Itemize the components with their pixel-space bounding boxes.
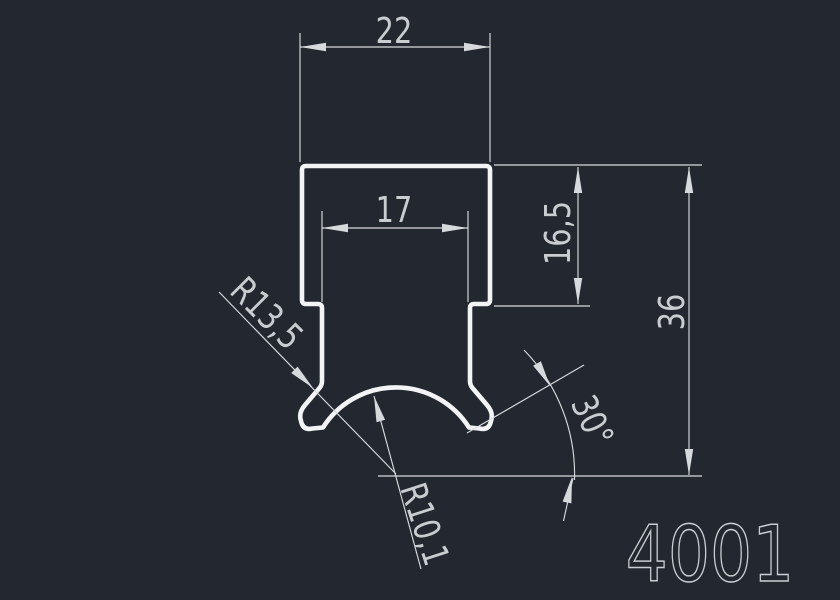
- dim-groove-radius-label: R10,1: [392, 478, 458, 571]
- dim-shoulder-height-arrow-top: [574, 167, 582, 193]
- dim-shoulder-height-arrow-bottom: [574, 278, 582, 304]
- dim-total-height: 36: [651, 167, 693, 475]
- dim-flank-angle: 30°: [467, 350, 622, 521]
- dim-shoulder-height-label: 16,5: [537, 201, 579, 265]
- dim-total-height-label: 36: [651, 294, 693, 331]
- dim-groove-radius-arrow: [374, 396, 385, 422]
- dim-slot-width-label: 17: [376, 189, 413, 231]
- dim-top-width-label: 22: [376, 10, 413, 52]
- dim-slot-width-arrow-right: [442, 224, 468, 232]
- dim-total-height-arrow-bottom: [685, 449, 693, 475]
- dim-top-width-arrow-left: [300, 43, 326, 51]
- dim-shoulder-height: 16,5: [494, 165, 702, 306]
- dim-flank-angle-label: 30°: [562, 389, 622, 453]
- dim-flank-angle-arrow-lower: [563, 477, 572, 503]
- dim-notch-radius: R13,5: [219, 269, 396, 474]
- cad-drawing-canvas[interactable]: 22 17 16,5 36: [0, 0, 840, 600]
- dim-slot-width-arrow-left: [322, 224, 348, 232]
- profile-drawing: 22 17 16,5 36: [0, 0, 840, 600]
- dim-flank-angle-arrow-upper: [533, 361, 550, 386]
- dim-slot-width: 17: [322, 189, 468, 302]
- dim-top-width: 22: [300, 10, 490, 162]
- dim-notch-radius-label: R13,5: [222, 269, 311, 358]
- dim-top-width-arrow-right: [464, 43, 490, 51]
- part-number-label: 4001: [626, 510, 795, 600]
- dim-notch-radius-arrow: [291, 367, 313, 388]
- dim-groove-radius: R10,1: [374, 396, 458, 571]
- dim-total-height-arrow-top: [685, 167, 693, 193]
